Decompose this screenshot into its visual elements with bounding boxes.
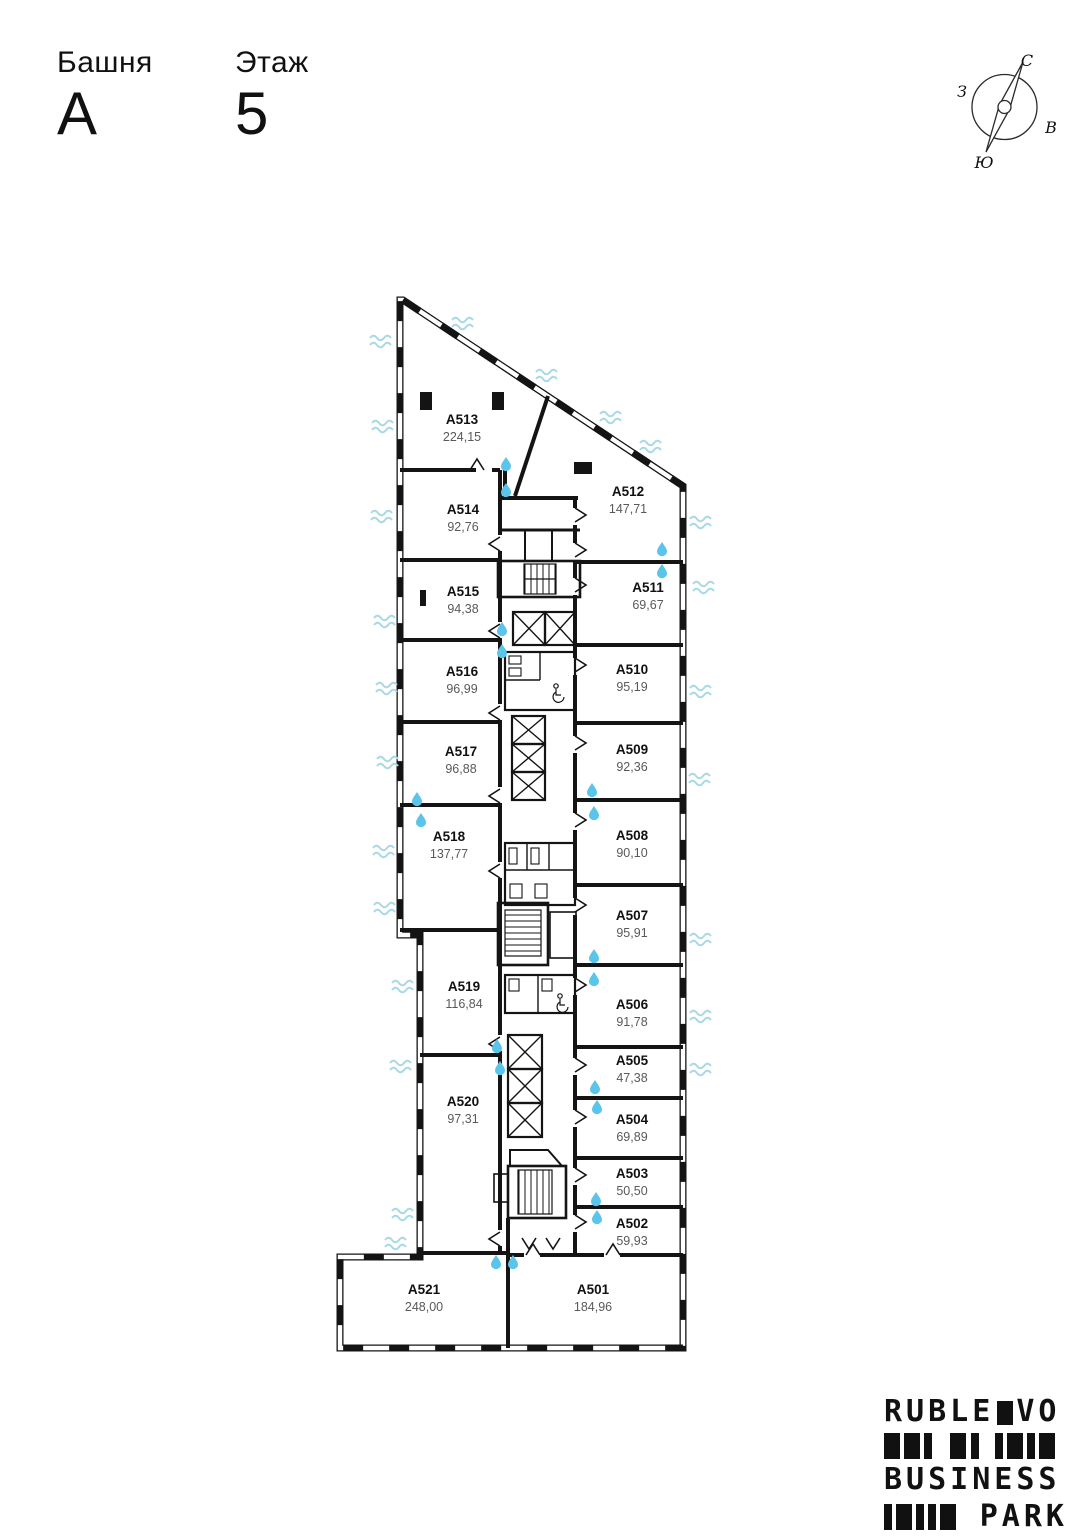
stair-icon-middle xyxy=(498,903,576,965)
elevator-icon-bank1 xyxy=(513,612,575,645)
logo-line3: PARK xyxy=(980,1501,1068,1533)
compass-west-label: З xyxy=(957,82,967,101)
room-label-a503: A503 50,50 xyxy=(616,1166,648,1199)
room-label-a521: A521 248,00 xyxy=(405,1282,443,1315)
room-label-a515: A515 94,38 xyxy=(447,584,479,617)
wc-block-3 xyxy=(505,975,575,1013)
logo-line1-left: RUBLE xyxy=(884,1396,994,1428)
room-label-a517: A517 96,88 xyxy=(445,744,477,777)
stair-icon-bottom xyxy=(494,1150,566,1218)
room-label-a509: A509 92,36 xyxy=(616,742,648,775)
room-label-a520: A520 97,31 xyxy=(447,1094,479,1127)
compass-east-label: В xyxy=(1044,118,1057,137)
room-label-a518: A518 137,77 xyxy=(430,829,468,862)
room-label-a504: A504 69,89 xyxy=(616,1112,648,1145)
logo-square-icon xyxy=(997,1401,1013,1425)
room-label-a505: A505 47,38 xyxy=(616,1053,648,1086)
wc-block-2 xyxy=(505,843,575,905)
room-label-a510: A510 95,19 xyxy=(616,662,648,695)
room-label-a514: A514 92,76 xyxy=(447,502,479,535)
core-elements xyxy=(494,561,580,1218)
room-label-a502: A502 59,93 xyxy=(616,1216,648,1249)
wc-block-1 xyxy=(505,652,575,710)
logo-line2: BUSINESS xyxy=(884,1464,1068,1496)
rublevo-business-park-logo: RUBLEVO BUSINESS PARK xyxy=(884,1396,1068,1533)
room-label-a501: A501 184,96 xyxy=(574,1282,612,1315)
room-label-a507: A507 95,91 xyxy=(616,908,648,941)
room-label-a512: A512 147,71 xyxy=(609,484,647,517)
room-label-a508: A508 90,10 xyxy=(616,828,648,861)
wheelchair-icon xyxy=(557,994,568,1013)
room-label-a506: A506 91,78 xyxy=(616,997,648,1030)
compass-north-label: С xyxy=(1021,51,1033,70)
logo-line3-row: PARK xyxy=(884,1501,1068,1533)
elevator-icon-bank2 xyxy=(512,716,545,800)
room-label-a511: A511 69,67 xyxy=(632,580,664,613)
logo-barcode-row-1 xyxy=(884,1433,1068,1459)
room-label-a513: A513 224,15 xyxy=(443,412,481,445)
floor-plan-svg: С З В Ю xyxy=(0,0,1086,1536)
logo-line1-right: VO xyxy=(1016,1396,1060,1428)
room-label-a519: A519 116,84 xyxy=(445,979,482,1012)
logo-barcode-row-2 xyxy=(884,1504,956,1530)
elevator-icon-bank3 xyxy=(508,1035,542,1137)
stair-icon-top xyxy=(498,561,580,597)
compass-south-label: Ю xyxy=(973,153,993,172)
room-label-a516: A516 96,99 xyxy=(446,664,478,697)
compass-rose: С З В Ю xyxy=(957,51,1057,172)
logo-line1: RUBLEVO xyxy=(884,1396,1068,1428)
wheelchair-icon xyxy=(553,684,564,703)
